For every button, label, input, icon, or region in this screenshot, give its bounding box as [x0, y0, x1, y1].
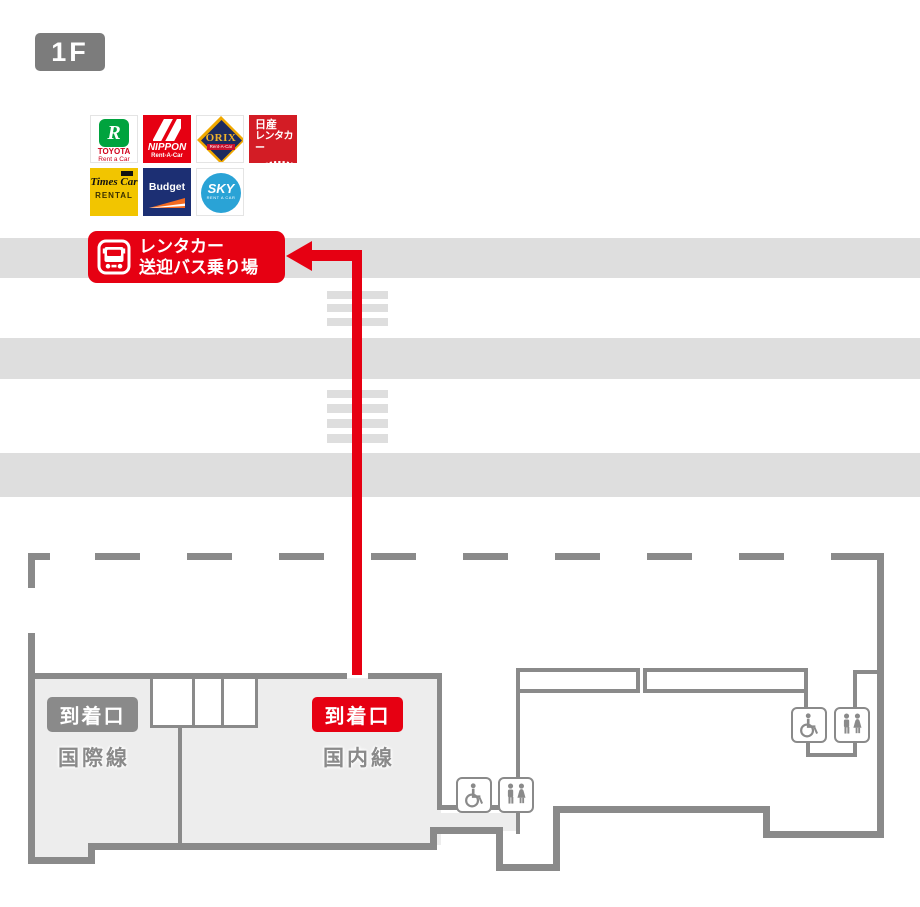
shuttle-bus-banner: レンタカー 送迎バス乗り場: [88, 231, 285, 283]
floor-badge: 1F: [35, 33, 105, 71]
times-name: Times Car: [90, 177, 138, 188]
wall-bottom: [28, 857, 95, 864]
orix-name: ORIX: [197, 132, 244, 144]
gate-box: [192, 676, 225, 728]
logo-orix-rent-a-car: ORIX Rent-A-Car: [196, 115, 244, 163]
wall-left: [28, 633, 35, 864]
toyota-sub: Rent a Car: [91, 156, 137, 163]
sky-circle-icon: SKY RENT A CAR: [201, 173, 241, 213]
bus-icon: [97, 238, 131, 276]
gate-label: 到着口: [60, 700, 126, 729]
wall-bottom: [496, 864, 560, 871]
sky-name: SKY: [201, 182, 241, 195]
wall-step: [553, 806, 560, 871]
banner-line2: 送迎バス乗り場: [139, 257, 258, 278]
gate-badge-domestic: 到着口: [312, 697, 403, 732]
wall-bottom: [763, 831, 884, 838]
toyota-mark-icon: R: [99, 119, 129, 147]
banner-line1: レンタカー: [139, 236, 258, 257]
line-label-international: 国際線: [58, 742, 130, 772]
gate-badge-international: 到着口: [47, 697, 138, 732]
logo-nippon-rent-a-car: NIPPON Rent-A-Car: [143, 115, 191, 163]
times-sub: RENTAL: [90, 191, 138, 200]
gate-box: [150, 676, 195, 728]
restroom-icon: [834, 707, 870, 743]
room-wall: [806, 753, 857, 757]
nissan-swoosh-icon: [255, 155, 297, 163]
terminal-top-wall: [368, 673, 441, 679]
room-wall: [853, 670, 881, 674]
floor-badge-label: 1F: [51, 37, 89, 68]
nissan-line2: レンタカー: [255, 131, 297, 155]
boundary-dashed-line: [95, 553, 845, 560]
nippon-sub: Rent-A-Car: [143, 153, 191, 160]
wall-bottom: [88, 843, 437, 850]
gate-label: 到着口: [325, 700, 391, 729]
nissan-line1: 日産: [255, 119, 297, 131]
budget-name: Budget: [143, 181, 191, 193]
restroom-icon: [498, 777, 534, 813]
times-mark-icon: [121, 171, 133, 176]
logo-sky-rent-a-car: SKY RENT A CAR: [196, 168, 244, 216]
road-band-2: [0, 338, 920, 379]
divider-wall: [178, 726, 182, 846]
wheelchair-accessible-icon: [456, 777, 492, 813]
wall-bottom: [430, 827, 503, 834]
wheelchair-accessible-icon: [791, 707, 827, 743]
floor-map-1f: 1F R TOYOTA Rent a Car NIPPON Rent-A-Car…: [0, 0, 920, 907]
alcove-wall: [437, 673, 442, 810]
logo-times-car-rental: Times Car RENTAL: [90, 168, 138, 216]
room-wall: [806, 741, 810, 757]
budget-swoosh-icon: [143, 193, 191, 211]
boundary-corner-dash: [28, 553, 35, 588]
wall-right: [877, 553, 884, 838]
route-line: [352, 251, 362, 675]
sky-sub: RENT A CAR: [201, 195, 241, 200]
logo-budget: Budget: [143, 168, 191, 216]
logo-nissan-rent-a-car: 日産 レンタカー: [249, 115, 297, 163]
counter: [516, 668, 640, 693]
road-band-3: [0, 453, 920, 497]
logo-toyota-rent-a-car: R TOYOTA Rent a Car: [90, 115, 138, 163]
orix-sub: Rent-A-Car: [207, 144, 235, 150]
line-label-domestic: 国内線: [323, 742, 395, 772]
nippon-name: NIPPON: [143, 142, 191, 153]
nippon-stripes-icon: [153, 119, 181, 141]
gate-box: [221, 676, 258, 728]
wall-bottom: [553, 806, 770, 813]
counter: [643, 668, 808, 693]
toyota-name: TOYOTA: [91, 148, 137, 156]
